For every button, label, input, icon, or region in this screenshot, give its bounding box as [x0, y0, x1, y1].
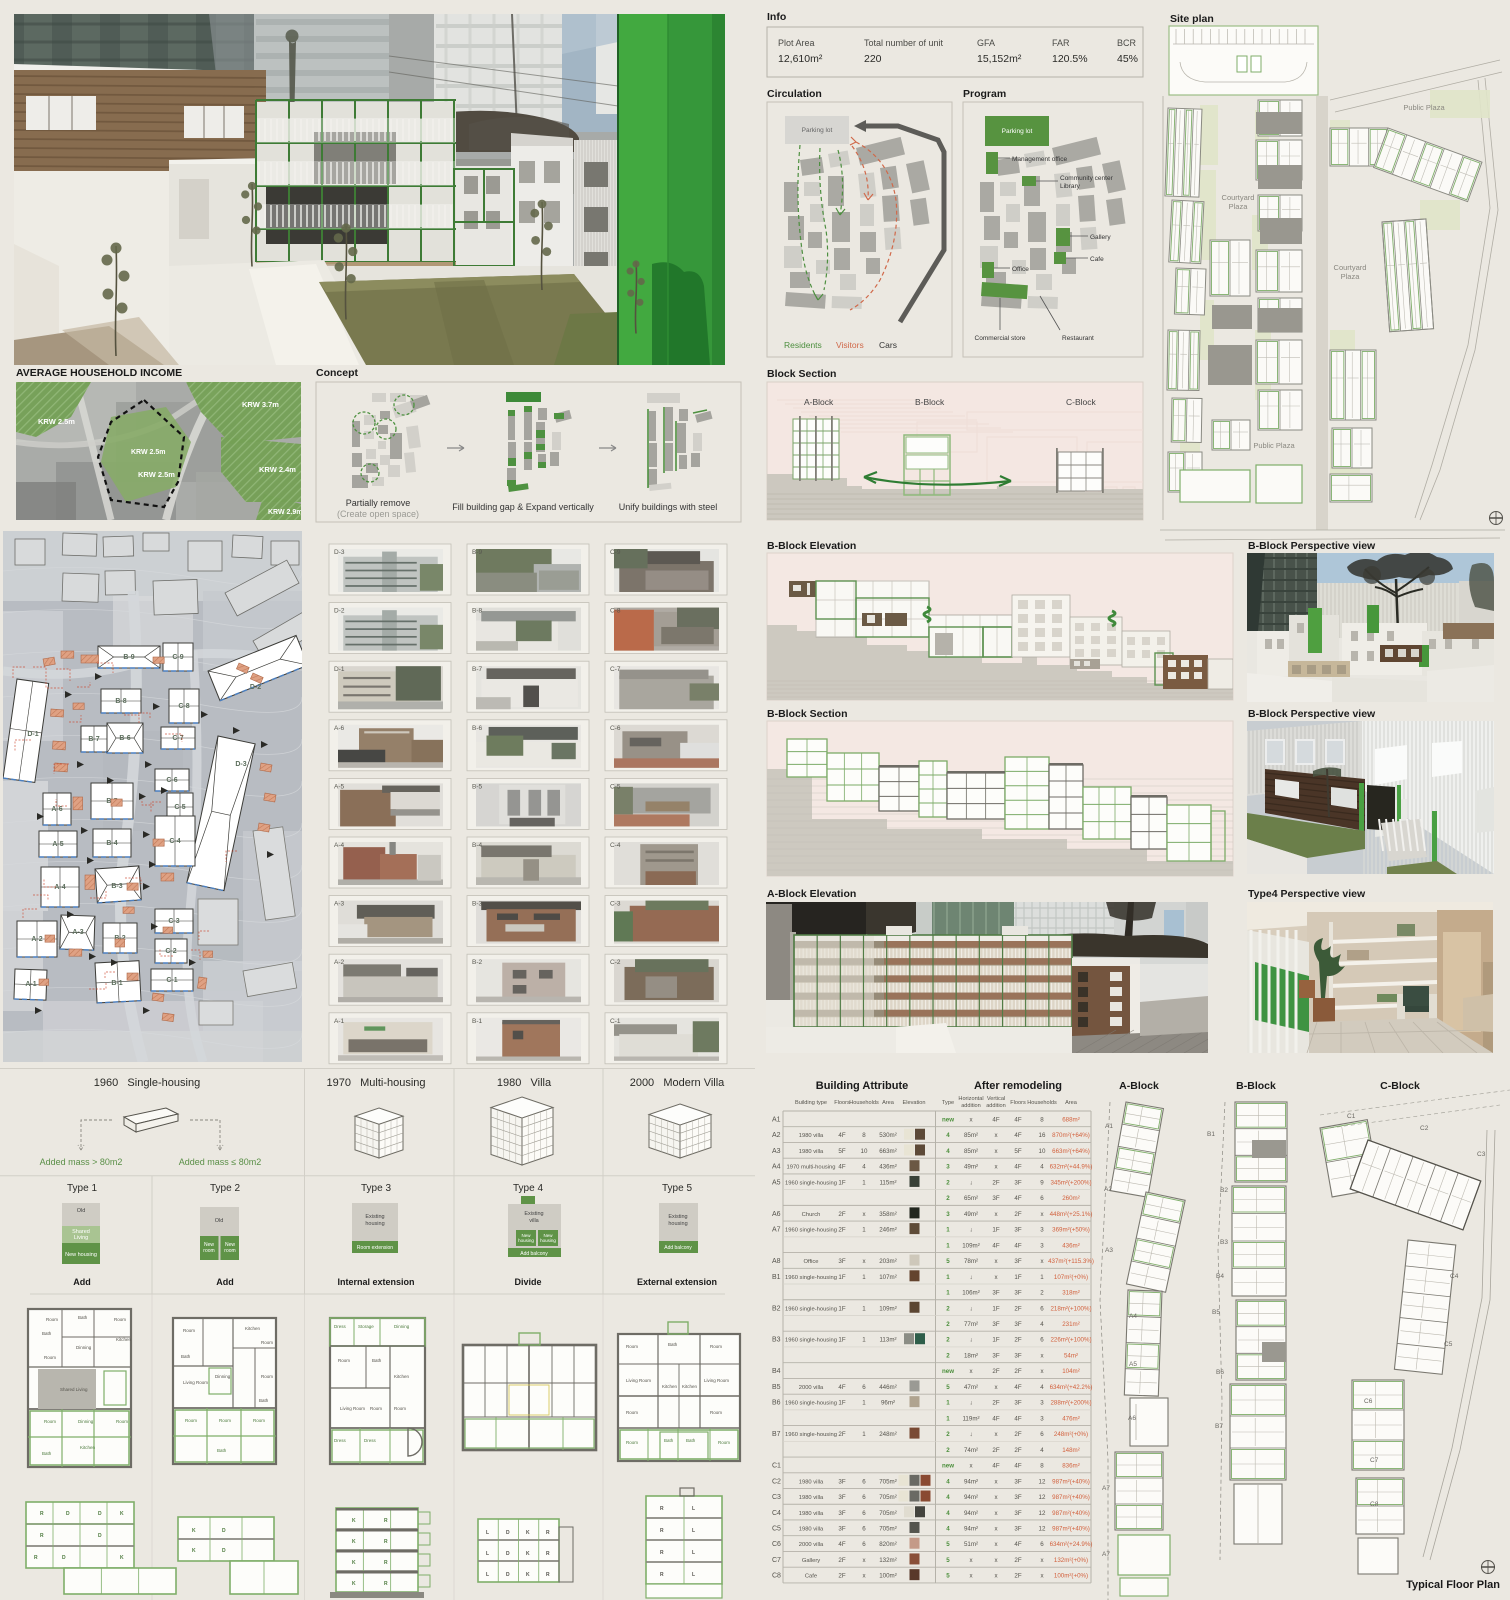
svg-text:Total number of unit: Total number of unit: [864, 38, 944, 48]
svg-text:x: x: [1040, 1352, 1044, 1359]
svg-text:Office: Office: [1012, 266, 1029, 273]
svg-text:Dinning: Dinning: [78, 1419, 94, 1424]
svg-text:x: x: [994, 1494, 998, 1501]
svg-text:248m²: 248m²: [879, 1431, 897, 1438]
svg-text:476m²: 476m²: [1062, 1415, 1080, 1422]
svg-text:Living: Living: [74, 1235, 88, 1241]
svg-text:A7: A7: [1102, 1485, 1110, 1492]
svg-text:AVERAGE HOUSEHOLD INCOME: AVERAGE HOUSEHOLD INCOME: [16, 367, 182, 379]
svg-text:663m²: 663m²: [879, 1148, 897, 1155]
svg-text:B6: B6: [1216, 1369, 1224, 1376]
svg-text:12: 12: [1039, 1494, 1046, 1501]
svg-text:BCR: BCR: [1117, 38, 1137, 48]
svg-text:9: 9: [1040, 1179, 1044, 1186]
svg-text:1980 villa: 1980 villa: [799, 1511, 824, 1517]
svg-text:x: x: [994, 1478, 998, 1485]
svg-text:A-5: A-5: [52, 841, 63, 848]
svg-text:6: 6: [862, 1384, 866, 1391]
svg-text:705m²: 705m²: [879, 1510, 897, 1517]
svg-text:Office: Office: [803, 1259, 818, 1265]
svg-text:x: x: [994, 1274, 998, 1281]
svg-text:D: D: [506, 1530, 510, 1536]
svg-text:A3: A3: [772, 1148, 781, 1155]
svg-text:3: 3: [1040, 1400, 1044, 1407]
svg-text:4: 4: [1040, 1164, 1044, 1171]
svg-text:12: 12: [1039, 1478, 1046, 1485]
svg-text:3F: 3F: [992, 1321, 999, 1328]
svg-text:A5: A5: [1129, 1361, 1137, 1368]
svg-text:Bath: Bath: [42, 1331, 52, 1336]
svg-text:4F: 4F: [992, 1242, 999, 1249]
svg-text:(Create open space): (Create open space): [337, 509, 419, 519]
svg-text:2: 2: [946, 1179, 950, 1186]
svg-text:85m²: 85m²: [964, 1148, 978, 1155]
svg-text:100m²: 100m²: [879, 1573, 897, 1580]
svg-text:Old: Old: [215, 1218, 224, 1224]
svg-text:L: L: [692, 1528, 695, 1534]
svg-text:Dinning: Dinning: [215, 1374, 231, 1379]
svg-text:R: R: [660, 1506, 664, 1512]
svg-text:A1: A1: [772, 1117, 781, 1124]
svg-text:446m²: 446m²: [879, 1384, 897, 1391]
svg-text:C-Block: C-Block: [1380, 1080, 1420, 1092]
svg-text:5F: 5F: [838, 1148, 845, 1155]
svg-text:room: room: [203, 1248, 214, 1254]
svg-text:6: 6: [862, 1494, 866, 1501]
svg-text:Courtyard: Courtyard: [1222, 193, 1255, 202]
svg-text:Fill building gap & Expand ver: Fill building gap & Expand vertically: [452, 502, 594, 512]
svg-text:K: K: [352, 1560, 356, 1566]
svg-text:1980 Villa: 1980 Villa: [497, 1077, 552, 1089]
svg-text:Parking lot: Parking lot: [1002, 128, 1033, 135]
svg-text:2: 2: [946, 1195, 950, 1202]
svg-text:2F: 2F: [1014, 1368, 1021, 1375]
svg-text:Floors: Floors: [834, 1100, 850, 1106]
svg-text:2F: 2F: [838, 1557, 845, 1564]
svg-text:2000 Modern Villa: 2000 Modern Villa: [630, 1077, 725, 1089]
svg-text:Bath: Bath: [42, 1451, 52, 1456]
svg-text:318m²: 318m²: [1062, 1290, 1080, 1297]
svg-text:4F: 4F: [838, 1164, 845, 1171]
svg-text:B-5: B-5: [472, 783, 483, 790]
svg-text:A-2: A-2: [31, 936, 42, 943]
svg-text:1960 single-housing: 1960 single-housing: [785, 1401, 837, 1407]
svg-text:Room: Room: [370, 1406, 382, 1411]
svg-text:A4: A4: [1129, 1313, 1137, 1320]
svg-text:Bath: Bath: [372, 1358, 382, 1363]
svg-text:6: 6: [1040, 1195, 1044, 1202]
svg-text:x: x: [969, 1463, 973, 1470]
svg-text:A-4: A-4: [54, 884, 65, 891]
svg-text:x: x: [1040, 1573, 1044, 1580]
svg-text:6: 6: [1040, 1305, 1044, 1312]
svg-text:A3: A3: [1105, 1247, 1113, 1254]
svg-text:Room: Room: [183, 1328, 195, 1333]
svg-text:Room: Room: [44, 1419, 56, 1424]
svg-text:2000 villa: 2000 villa: [799, 1385, 824, 1391]
svg-text:530m²: 530m²: [879, 1132, 897, 1139]
svg-text:119m²: 119m²: [962, 1415, 979, 1422]
svg-text:Cars: Cars: [879, 340, 897, 350]
svg-text:1F: 1F: [992, 1227, 999, 1234]
svg-text:Room: Room: [394, 1406, 406, 1411]
svg-text:B-2: B-2: [472, 959, 483, 966]
svg-text:x: x: [994, 1148, 998, 1155]
svg-text:Partially remove: Partially remove: [346, 498, 411, 508]
svg-text:B5: B5: [772, 1384, 781, 1391]
svg-text:1980 villa: 1980 villa: [799, 1149, 824, 1155]
svg-text:663m²(+64%): 663m²(+64%): [1052, 1148, 1090, 1155]
svg-text:Internal extension: Internal extension: [337, 1277, 414, 1287]
svg-text:Plot Area: Plot Area: [778, 38, 815, 48]
svg-text:3F: 3F: [1014, 1179, 1021, 1186]
svg-text:Bath: Bath: [668, 1342, 678, 1347]
svg-text:After remodeling: After remodeling: [974, 1080, 1062, 1092]
svg-text:KRW 3.7m: KRW 3.7m: [242, 400, 279, 409]
svg-text:D-2: D-2: [250, 684, 261, 691]
svg-text:1F: 1F: [838, 1305, 845, 1312]
svg-text:Floors: Floors: [1010, 1100, 1026, 1106]
svg-text:4F: 4F: [992, 1117, 999, 1124]
svg-text:Room: Room: [219, 1418, 231, 1423]
svg-text:Room: Room: [626, 1440, 638, 1445]
svg-text:Vertical: Vertical: [987, 1096, 1005, 1102]
svg-text:2F: 2F: [992, 1368, 999, 1375]
svg-text:4F: 4F: [992, 1463, 999, 1470]
svg-text:C8: C8: [1370, 1501, 1379, 1508]
svg-text:3F: 3F: [1014, 1400, 1021, 1407]
svg-text:109m²: 109m²: [962, 1242, 980, 1249]
svg-text:B-3: B-3: [472, 901, 483, 908]
svg-text:Existing: Existing: [524, 1211, 543, 1217]
svg-text:C7: C7: [772, 1557, 781, 1564]
svg-text:Plaza: Plaza: [1229, 202, 1249, 211]
svg-text:1F: 1F: [992, 1305, 999, 1312]
svg-text:4F: 4F: [838, 1132, 845, 1139]
svg-text:x: x: [994, 1557, 998, 1564]
svg-text:12: 12: [1039, 1510, 1046, 1517]
svg-text:C8: C8: [772, 1573, 781, 1580]
svg-text:1: 1: [862, 1179, 866, 1186]
svg-text:4F: 4F: [1014, 1541, 1021, 1548]
svg-text:x: x: [994, 1211, 998, 1218]
svg-text:1980 villa: 1980 villa: [799, 1133, 824, 1139]
svg-text:2000 villa: 2000 villa: [799, 1542, 824, 1548]
svg-text:↓: ↓: [969, 1305, 972, 1312]
svg-text:1F: 1F: [838, 1179, 845, 1186]
svg-text:Room: Room: [338, 1358, 350, 1363]
svg-text:Kitchen: Kitchen: [80, 1445, 96, 1450]
svg-text:B-Block Perspective view: B-Block Perspective view: [1248, 540, 1376, 552]
svg-text:437m²(+115.3%): 437m²(+115.3%): [1048, 1258, 1094, 1265]
svg-text:1970 Multi-housing: 1970 Multi-housing: [326, 1077, 425, 1089]
svg-text:B-7: B-7: [88, 736, 99, 743]
svg-text:358m²: 358m²: [879, 1211, 897, 1218]
svg-text:4F: 4F: [1014, 1415, 1021, 1422]
svg-text:3F: 3F: [992, 1290, 999, 1297]
svg-text:3F: 3F: [1014, 1494, 1021, 1501]
svg-text:A8: A8: [772, 1258, 781, 1265]
svg-text:K: K: [192, 1528, 196, 1534]
svg-text:R: R: [660, 1550, 664, 1556]
svg-text:1F: 1F: [1014, 1274, 1021, 1281]
svg-text:x: x: [1040, 1258, 1044, 1265]
svg-text:Circulation: Circulation: [767, 88, 822, 100]
svg-text:x: x: [862, 1557, 866, 1564]
svg-text:housing: housing: [540, 1238, 556, 1243]
svg-text:Type4 Perspective view: Type4 Perspective view: [1248, 888, 1366, 900]
svg-text:2F: 2F: [1014, 1447, 1021, 1454]
svg-text:A-1: A-1: [334, 1018, 345, 1025]
svg-text:260m²: 260m²: [1062, 1195, 1080, 1202]
svg-text:B3: B3: [772, 1337, 781, 1344]
svg-text:1: 1: [946, 1227, 950, 1234]
svg-text:1960 single-housing: 1960 single-housing: [785, 1275, 837, 1281]
svg-text:8: 8: [862, 1132, 866, 1139]
svg-text:Management office: Management office: [1012, 156, 1068, 163]
svg-text:C-6: C-6: [166, 777, 177, 784]
svg-text:15,152m²: 15,152m²: [977, 53, 1022, 65]
svg-text:x: x: [994, 1384, 998, 1391]
svg-text:A-Block: A-Block: [1119, 1080, 1159, 1092]
svg-text:new: new: [942, 1368, 954, 1375]
svg-text:B5: B5: [1212, 1309, 1220, 1316]
svg-text:B-Block Elevation: B-Block Elevation: [767, 540, 856, 552]
svg-text:220: 220: [864, 53, 882, 65]
svg-text:248m²(+0%): 248m²(+0%): [1054, 1431, 1088, 1438]
svg-text:Dress: Dress: [364, 1438, 377, 1443]
svg-text:K: K: [120, 1555, 124, 1561]
svg-text:2F: 2F: [1014, 1305, 1021, 1312]
svg-text:C-2: C-2: [610, 959, 621, 966]
svg-text:A-6: A-6: [334, 725, 345, 732]
svg-text:Room: Room: [114, 1317, 126, 1322]
svg-text:Public Plaza: Public Plaza: [1403, 103, 1445, 112]
svg-text:Type: Type: [942, 1100, 954, 1106]
svg-text:Households: Households: [1027, 1100, 1057, 1106]
svg-text:4: 4: [946, 1148, 950, 1155]
svg-text:226m²(+100%): 226m²(+100%): [1050, 1337, 1091, 1344]
svg-text:A2: A2: [772, 1132, 781, 1139]
svg-text:x: x: [969, 1573, 973, 1580]
svg-text:51m²: 51m²: [964, 1541, 978, 1548]
svg-text:Dress: Dress: [334, 1324, 347, 1329]
svg-text:2F: 2F: [1014, 1337, 1021, 1344]
svg-text:3F: 3F: [1014, 1352, 1021, 1359]
svg-text:3F: 3F: [1014, 1290, 1021, 1297]
svg-text:4F: 4F: [1014, 1195, 1021, 1202]
svg-text:x: x: [994, 1525, 998, 1532]
svg-text:C1: C1: [772, 1463, 781, 1470]
svg-text:x: x: [862, 1211, 866, 1218]
svg-text:New housing: New housing: [65, 1252, 97, 1258]
svg-text:C-1: C-1: [166, 977, 177, 984]
svg-text:A4: A4: [772, 1164, 781, 1171]
svg-text:2: 2: [946, 1305, 950, 1312]
svg-text:Type 5: Type 5: [662, 1183, 692, 1194]
svg-text:L: L: [692, 1550, 695, 1556]
svg-text:1: 1: [862, 1337, 866, 1344]
svg-text:49m²: 49m²: [964, 1211, 978, 1218]
svg-text:Gallery: Gallery: [1090, 234, 1111, 241]
svg-text:987m²(+40%): 987m²(+40%): [1052, 1478, 1090, 1485]
svg-text:12: 12: [1039, 1525, 1046, 1532]
svg-text:C6: C6: [1364, 1398, 1373, 1405]
svg-text:246m²: 246m²: [879, 1227, 897, 1234]
svg-text:870m²(+64%): 870m²(+64%): [1052, 1132, 1090, 1139]
svg-text:↓: ↓: [969, 1227, 972, 1234]
svg-text:Dinning: Dinning: [76, 1345, 92, 1350]
svg-text:x: x: [994, 1573, 998, 1580]
svg-text:C-7: C-7: [610, 666, 621, 673]
svg-text:x: x: [994, 1258, 998, 1265]
svg-text:12,610m²: 12,610m²: [778, 53, 823, 65]
svg-text:Living Room: Living Room: [704, 1378, 729, 1383]
svg-text:94m²: 94m²: [964, 1494, 978, 1501]
svg-text:KRW 2.9m: KRW 2.9m: [268, 509, 303, 516]
svg-text:2F: 2F: [1014, 1573, 1021, 1580]
svg-text:L: L: [692, 1506, 695, 1512]
svg-text:new: new: [942, 1463, 954, 1470]
svg-text:D: D: [506, 1551, 510, 1557]
svg-text:villa: villa: [529, 1218, 539, 1224]
svg-text:436m²: 436m²: [879, 1164, 897, 1171]
svg-text:↓: ↓: [969, 1179, 972, 1186]
svg-text:1: 1: [946, 1242, 950, 1249]
svg-text:Shared Living: Shared Living: [60, 1387, 88, 1392]
svg-text:2: 2: [1040, 1290, 1044, 1297]
svg-text:3F: 3F: [992, 1352, 999, 1359]
svg-text:1960 single-housing: 1960 single-housing: [785, 1228, 837, 1234]
svg-text:2: 2: [946, 1321, 950, 1328]
svg-text:688m²: 688m²: [1062, 1117, 1080, 1124]
svg-text:4F: 4F: [838, 1541, 845, 1548]
svg-text:5F: 5F: [1014, 1148, 1021, 1155]
svg-text:Room extension: Room extension: [357, 1245, 393, 1251]
svg-text:Added mass ≤ 80m2: Added mass ≤ 80m2: [179, 1157, 261, 1167]
svg-text:4: 4: [1040, 1447, 1044, 1454]
svg-text:Bath: Bath: [686, 1438, 696, 1443]
svg-text:Add balcony: Add balcony: [520, 1251, 548, 1257]
svg-text:8: 8: [1040, 1117, 1044, 1124]
svg-text:C-1: C-1: [610, 1018, 621, 1025]
svg-text:x: x: [994, 1132, 998, 1139]
svg-text:L: L: [486, 1530, 489, 1536]
svg-text:A5: A5: [772, 1179, 781, 1186]
svg-text:C-9: C-9: [172, 654, 183, 661]
svg-text:x: x: [969, 1557, 973, 1564]
svg-text:C-5: C-5: [174, 804, 185, 811]
svg-text:45%: 45%: [1117, 53, 1138, 65]
svg-text:D-3: D-3: [334, 549, 345, 556]
svg-text:B-Block: B-Block: [915, 397, 945, 407]
svg-text:B-8: B-8: [115, 698, 126, 705]
svg-text:Room: Room: [185, 1418, 197, 1423]
svg-text:4F: 4F: [838, 1384, 845, 1391]
svg-text:C-Block: C-Block: [1066, 397, 1097, 407]
svg-text:B-6: B-6: [472, 725, 483, 732]
svg-text:3F: 3F: [1014, 1321, 1021, 1328]
svg-text:987m²(+40%): 987m²(+40%): [1052, 1494, 1090, 1501]
svg-text:x: x: [1040, 1557, 1044, 1564]
svg-text:new: new: [942, 1117, 954, 1124]
svg-text:B7: B7: [1215, 1423, 1223, 1430]
svg-text:Horizontal: Horizontal: [958, 1096, 983, 1102]
svg-text:2F: 2F: [838, 1211, 845, 1218]
svg-text:74m²: 74m²: [964, 1447, 978, 1454]
svg-text:R: R: [384, 1581, 388, 1587]
svg-text:B4: B4: [1216, 1273, 1224, 1280]
svg-text:C-3: C-3: [610, 901, 621, 908]
svg-text:Room: Room: [116, 1419, 128, 1424]
svg-text:94m²: 94m²: [964, 1525, 978, 1532]
svg-text:Kitchen: Kitchen: [116, 1337, 132, 1342]
svg-text:A-3: A-3: [72, 929, 83, 936]
svg-text:3: 3: [1040, 1227, 1044, 1234]
svg-text:634m²(+24.9%): 634m²(+24.9%): [1050, 1541, 1093, 1548]
svg-text:448m²(+25.1%): 448m²(+25.1%): [1050, 1211, 1093, 1218]
svg-text:Church: Church: [802, 1212, 821, 1218]
svg-text:436m²: 436m²: [1062, 1242, 1080, 1249]
svg-text:Added mass > 80m2: Added mass > 80m2: [40, 1157, 123, 1167]
svg-text:Bath: Bath: [217, 1448, 227, 1453]
svg-text:R: R: [384, 1518, 388, 1524]
svg-text:K: K: [526, 1530, 530, 1536]
svg-text:100m²(+0%): 100m²(+0%): [1054, 1573, 1088, 1580]
svg-text:C-9: C-9: [610, 549, 621, 556]
svg-text:K: K: [352, 1518, 356, 1524]
svg-text:345m²(+200%): 345m²(+200%): [1050, 1179, 1091, 1186]
svg-text:Bath: Bath: [181, 1354, 191, 1359]
svg-text:R: R: [34, 1555, 38, 1561]
svg-text:Kitchen: Kitchen: [245, 1326, 261, 1331]
svg-text:Storage: Storage: [358, 1324, 374, 1329]
svg-text:1980 villa: 1980 villa: [799, 1495, 824, 1501]
svg-text:Room: Room: [710, 1410, 722, 1415]
svg-text:6: 6: [862, 1478, 866, 1485]
svg-text:B2: B2: [772, 1305, 781, 1312]
svg-text:D: D: [98, 1511, 102, 1517]
svg-text:6: 6: [1040, 1541, 1044, 1548]
svg-text:2F: 2F: [992, 1179, 999, 1186]
svg-text:A6: A6: [772, 1211, 781, 1218]
svg-text:C-2: C-2: [165, 948, 176, 955]
svg-text:Commercial store: Commercial store: [975, 335, 1026, 342]
svg-text:78m²: 78m²: [964, 1258, 978, 1265]
svg-text:3F: 3F: [1014, 1525, 1021, 1532]
svg-text:Divide: Divide: [514, 1277, 541, 1287]
svg-text:4F: 4F: [1014, 1463, 1021, 1470]
svg-text:A7: A7: [772, 1227, 781, 1234]
svg-text:1F: 1F: [838, 1274, 845, 1281]
svg-text:A7: A7: [1102, 1551, 1110, 1558]
svg-text:x: x: [994, 1541, 998, 1548]
svg-text:10: 10: [861, 1148, 868, 1155]
svg-text:1F: 1F: [992, 1337, 999, 1344]
svg-text:K: K: [526, 1551, 530, 1557]
svg-text:Bath: Bath: [664, 1438, 674, 1443]
svg-text:Room: Room: [718, 1440, 730, 1445]
svg-text:4: 4: [946, 1132, 950, 1139]
svg-text:4: 4: [1040, 1321, 1044, 1328]
svg-text:x: x: [969, 1117, 973, 1124]
svg-text:132m²(+0%): 132m²(+0%): [1054, 1557, 1088, 1564]
svg-text:2F: 2F: [1014, 1557, 1021, 1564]
svg-text:Households: Households: [849, 1100, 879, 1106]
svg-text:Room: Room: [46, 1317, 58, 1322]
svg-text:Area: Area: [882, 1100, 895, 1106]
svg-text:B-6: B-6: [119, 735, 130, 742]
